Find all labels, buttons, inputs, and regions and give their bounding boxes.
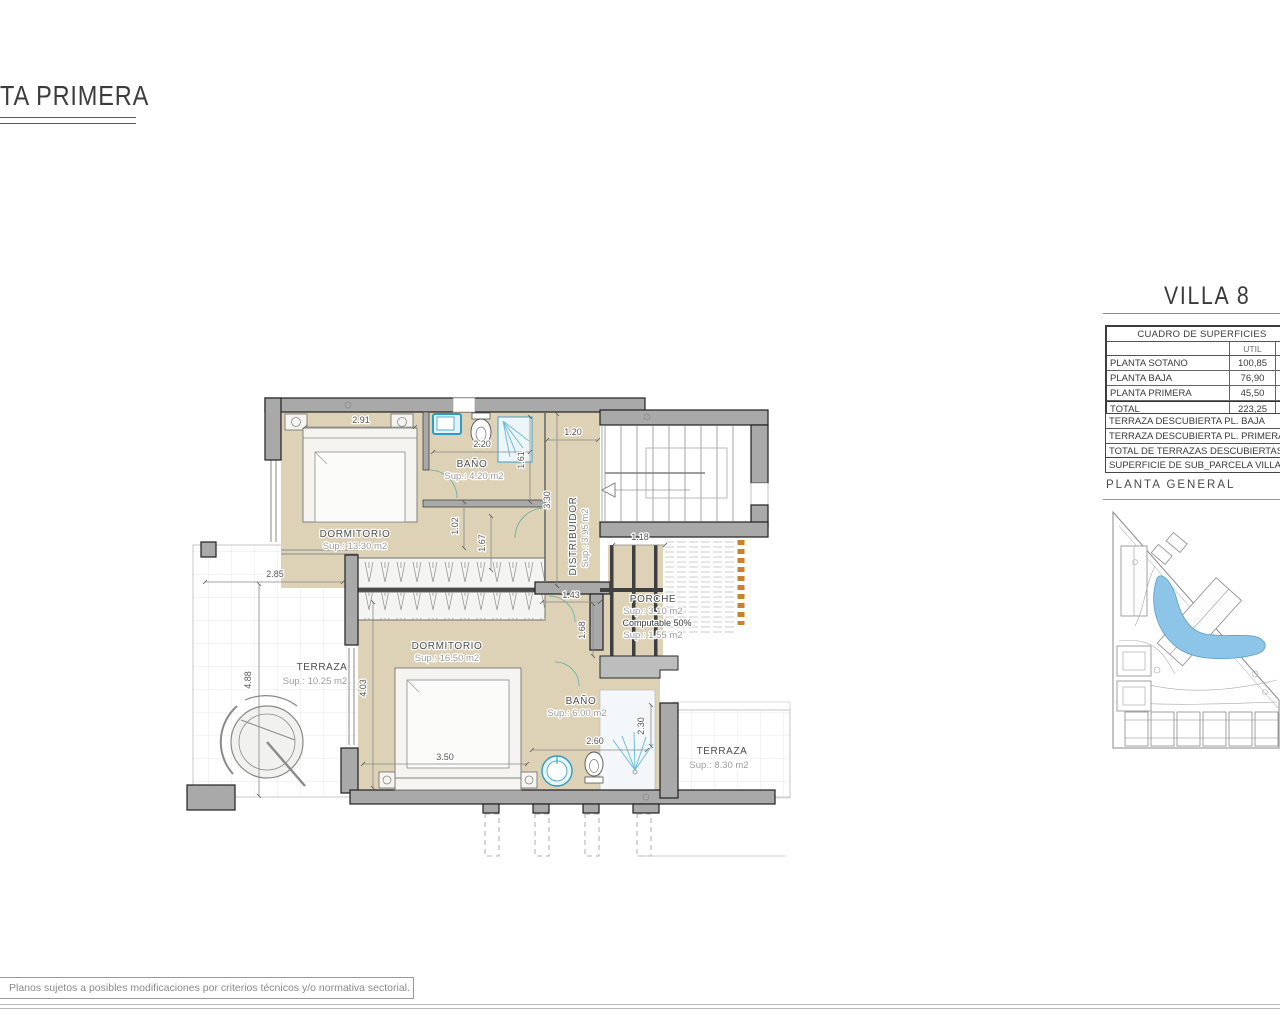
svg-text:1.61: 1.61 (516, 451, 526, 469)
room-distribuidor-name: DISTRIBUIDOR (568, 497, 579, 576)
room-bath1-name: BAÑO (457, 457, 488, 470)
room-porch-name: PORCHE (630, 594, 676, 605)
title-underline (0, 117, 136, 124)
svg-text:4.03: 4.03 (358, 679, 368, 697)
room-dorm1-sup: Sup.: 13.30 m2 (323, 541, 387, 552)
room-terrace-left-sup: Sup.: 10.25 m2 (283, 676, 347, 687)
site-plan (1105, 506, 1280, 761)
bed-1 (285, 414, 417, 522)
drawing-sheet: TA PRIMERA (0, 0, 1280, 1024)
room-distribuidor-sup: Sup.: 3.95 m2 (580, 508, 591, 567)
svg-text:1.02: 1.02 (450, 517, 460, 535)
svg-text:1.20: 1.20 (564, 427, 582, 437)
planta-general-underline (1103, 499, 1280, 500)
svg-text:1.18: 1.18 (631, 532, 649, 542)
room-dorm2-sup: Sup.: 16.50 m2 (415, 653, 479, 664)
terrace-row: TOTAL DE TERRAZAS DESCUBIERTAS (1106, 444, 1280, 458)
room-porch-sup2: Sup.: 1.55 m2 (623, 630, 682, 641)
villa-title-underline (1103, 313, 1280, 314)
svg-text:4.88: 4.88 (243, 671, 253, 689)
surfaces-table: CUADRO DE SUPERFICIES UTIL PLANTA SOTANO… (1105, 325, 1280, 418)
table-row: PLANTA PRIMERA 45,50 (1107, 386, 1280, 401)
surfaces-table-title: CUADRO DE SUPERFICIES (1107, 327, 1280, 342)
svg-text:3.30: 3.30 (542, 491, 552, 509)
staircase (602, 425, 733, 521)
floor-plan: 2.91 2.20 1.20 1.61 3.30 1.02 1.67 2.85 … (185, 390, 805, 890)
room-terrace-left-name: TERRAZA (297, 662, 348, 673)
terrace-row: TERRAZA DESCUBIERTA PL. BAJA (1106, 414, 1280, 429)
svg-text:2.91: 2.91 (352, 415, 370, 425)
svg-text:2.30: 2.30 (636, 717, 646, 735)
shower-2 (600, 690, 655, 790)
table-row: PLANTA BAJA 76,90 (1107, 371, 1280, 386)
svg-text:3.50: 3.50 (436, 752, 454, 762)
bed-2 (379, 668, 537, 790)
room-dorm1-name: DORMITORIO (320, 529, 391, 540)
column-projections (485, 814, 651, 856)
room-terrace-right-name: TERRAZA (697, 746, 748, 757)
svg-text:2.20: 2.20 (473, 439, 491, 449)
svg-text:1.67: 1.67 (477, 534, 487, 552)
page-title: TA PRIMERA (0, 80, 149, 112)
room-porch-note: Computable 50% (622, 618, 691, 628)
disclaimer-note: Planos sujetos a posibles modificaciones… (0, 977, 414, 999)
svg-text:2.60: 2.60 (586, 736, 604, 746)
room-bath2-name: BAÑO (566, 694, 597, 707)
sheet-bottom-rule (0, 1004, 1280, 1009)
room-dorm2-name: DORMITORIO (412, 641, 483, 652)
table-row: PLANTA SOTANO 100,85 (1107, 356, 1280, 371)
terrace-row: TERRAZA DESCUBIERTA PL. PRIMERA (1106, 429, 1280, 444)
room-bath2-sup: Sup.: 6.00 m2 (547, 708, 606, 719)
surfaces-table-header: UTIL (1107, 342, 1280, 356)
room-bath1-sup: Sup.: 4.20 m2 (444, 471, 503, 482)
villa-title: VILLA 8 (1164, 282, 1250, 311)
wardrobe-closets (358, 558, 545, 620)
room-terrace-right-sup: Sup.: 8.30 m2 (689, 760, 748, 771)
terrace-rows-box: TERRAZA DESCUBIERTA PL. BAJA TERRAZA DES… (1105, 413, 1280, 459)
room-porch-sup: Sup.: 3.10 m2 (623, 606, 682, 617)
svg-text:1.68: 1.68 (577, 621, 587, 639)
parcel-row: SUPERFICIE DE SUB_PARCELA VILLA (1105, 457, 1280, 473)
svg-text:1.43: 1.43 (562, 590, 580, 600)
svg-text:2.85: 2.85 (266, 569, 284, 579)
col-util: UTIL (1229, 342, 1275, 355)
planta-general-label: PLANTA GENERAL (1106, 479, 1235, 491)
